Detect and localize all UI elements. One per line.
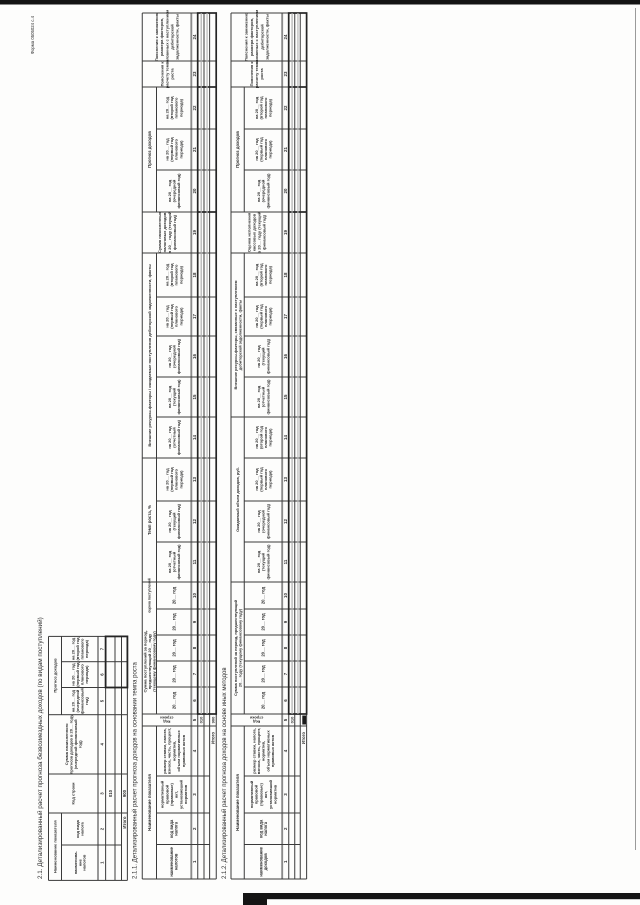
svg-text:2.1.1. Детализированный расчет: 2.1.1. Детализированный расчет прогноза … <box>132 662 139 879</box>
svg-text:1: 1 <box>99 861 104 864</box>
svg-text:роста: роста <box>259 68 264 80</box>
svg-text:19: 19 <box>192 230 197 235</box>
svg-text:010: 010 <box>198 716 203 723</box>
svg-text:3: 3 <box>192 793 197 796</box>
svg-text:13: 13 <box>192 477 197 482</box>
svg-text:финансовый год): финансовый год) <box>262 214 267 250</box>
svg-text:периода): периода) <box>178 307 183 326</box>
svg-text:12: 12 <box>283 519 288 524</box>
svg-text:финансовый год): финансовый год) <box>265 379 270 415</box>
svg-text:4: 4 <box>283 749 288 752</box>
svg-text:010: 010 <box>108 789 113 797</box>
svg-text:периода): периода) <box>178 265 183 284</box>
svg-text:1: 1 <box>192 860 197 863</box>
svg-text:периода): периода) <box>84 665 89 684</box>
svg-text:3: 3 <box>283 793 288 796</box>
svg-text:финансовый год): финансовый год) <box>265 338 270 374</box>
svg-text:6: 6 <box>99 673 104 676</box>
svg-text:17: 17 <box>192 314 197 319</box>
svg-text:строки: строки <box>249 715 263 720</box>
svg-text:периода): периода) <box>178 98 183 117</box>
svg-text:4: 4 <box>99 742 104 745</box>
svg-text:16: 16 <box>192 354 197 359</box>
svg-text:периода): периода) <box>178 140 183 159</box>
svg-text:финансовый год): финансовый год) <box>265 173 270 209</box>
svg-text:правовых актов: правовых актов <box>181 734 186 767</box>
svg-text:12: 12 <box>192 519 197 524</box>
svg-text:Прогноз доходов: Прогноз доходов <box>147 131 152 168</box>
svg-text:периода): периода) <box>268 265 273 284</box>
svg-text:2: 2 <box>99 827 104 830</box>
svg-text:год): год) <box>78 740 83 749</box>
svg-text:Прогноз доходов: Прогноз доходов <box>235 131 240 168</box>
svg-text:Темп роста, %: Темп роста, % <box>147 505 152 535</box>
svg-text:периода): периода) <box>268 98 273 117</box>
svg-text:17: 17 <box>283 314 288 319</box>
svg-text:14: 14 <box>192 435 197 440</box>
svg-text:(текущему финансовому году): (текущему финансовому году) <box>151 631 156 692</box>
svg-text:21: 21 <box>283 147 288 152</box>
svg-text:20__ год: 20__ год <box>261 613 266 631</box>
svg-text:периода): периода) <box>268 470 273 489</box>
svg-text:финансовый год): финансовый год) <box>176 419 181 455</box>
svg-text:периода): периода) <box>268 307 273 326</box>
svg-text:Наименование показателя: Наименование показателя <box>147 774 152 831</box>
svg-text:20__ год: 20__ год <box>171 587 176 605</box>
svg-text:2: 2 <box>283 827 288 830</box>
svg-text:финансовый год): финансовый год) <box>265 503 270 539</box>
svg-text:Итого: Итого <box>210 732 215 744</box>
svg-text:оценка поступлений: оценка поступлений <box>147 578 151 612</box>
svg-text:норматив: норматив <box>183 784 188 804</box>
svg-text:налога: налога <box>174 821 179 836</box>
svg-text:18: 18 <box>192 272 197 277</box>
svg-text:15: 15 <box>283 394 288 399</box>
svg-text:900: 900 <box>210 716 215 723</box>
svg-text:5: 5 <box>283 718 288 721</box>
svg-text:22: 22 <box>192 105 197 110</box>
svg-text:периода): периода) <box>178 470 183 489</box>
svg-text:Итого: Итого <box>122 816 127 828</box>
svg-text:финансовый год): финансовый год) <box>176 173 181 209</box>
svg-text:периода): периода) <box>84 639 89 658</box>
svg-text:20__ году (текущему финансовом: 20__ году (текущему финансовому году) <box>237 608 242 687</box>
svg-text:2.1.2. Детализированный расчет: 2.1.2. Детализированный расчет прогноза … <box>221 667 228 879</box>
svg-text:6: 6 <box>283 699 288 702</box>
svg-text:финансовый год): финансовый год) <box>265 544 270 580</box>
svg-text:20__ год: 20__ год <box>261 692 266 710</box>
svg-text:20__ год: 20__ год <box>171 692 176 710</box>
svg-text:19: 19 <box>283 230 288 235</box>
svg-text:дебиторской задолженности, фак: дебиторской задолженности, факты <box>237 299 242 370</box>
svg-text:Код строки: Код строки <box>71 782 76 805</box>
svg-text:23: 23 <box>192 71 197 76</box>
svg-text:периода): периода) <box>268 140 273 159</box>
svg-text:15: 15 <box>192 394 197 399</box>
svg-text:Итого: Итого <box>301 732 306 744</box>
svg-text:010: 010 <box>289 716 294 723</box>
svg-text:Прогноз доходов: Прогноз доходов <box>53 658 58 693</box>
svg-text:периода): периода) <box>268 428 273 447</box>
svg-text:13: 13 <box>283 477 288 482</box>
svg-text:7: 7 <box>192 672 197 675</box>
svg-text:20__ год: 20__ год <box>171 613 176 631</box>
svg-text:20__ год: 20__ год <box>261 665 266 683</box>
svg-text:Ожидаемый объем доходов, руб.: Ожидаемый объем доходов, руб. <box>235 467 240 532</box>
svg-text:24: 24 <box>192 34 197 39</box>
svg-text:20__ год: 20__ год <box>171 665 176 683</box>
svg-text:8: 8 <box>192 646 197 649</box>
svg-text:14: 14 <box>283 435 288 440</box>
svg-text:6: 6 <box>192 699 197 702</box>
svg-text:7: 7 <box>99 647 104 650</box>
svg-text:финансовый год): финансовый год) <box>176 503 181 539</box>
svg-text:финансовый год): финансовый год) <box>176 379 181 415</box>
svg-text:11: 11 <box>192 559 197 564</box>
svg-text:строки: строки <box>160 715 174 720</box>
svg-text:задолженности, факты: задолженности, факты <box>265 14 270 60</box>
svg-text:20: 20 <box>283 188 288 193</box>
svg-text:2: 2 <box>192 827 197 830</box>
svg-text:налогов: налогов <box>174 853 179 870</box>
svg-text:22: 22 <box>283 105 288 110</box>
svg-text:1: 1 <box>283 860 288 863</box>
svg-text:16: 16 <box>283 354 288 359</box>
svg-text:20: 20 <box>192 188 197 193</box>
svg-text:2.1. Детализированный расчет п: 2.1. Детализированный расчет прогноза бе… <box>36 617 44 879</box>
svg-text:налогов: налогов <box>82 854 87 871</box>
svg-text:роста: роста <box>169 68 174 80</box>
svg-text:9: 9 <box>283 620 288 623</box>
svg-text:3: 3 <box>99 792 104 795</box>
svg-text:задолженности, факты: задолженности, факты <box>175 14 180 60</box>
svg-text:5: 5 <box>99 699 104 702</box>
svg-text:Наименование показателя: Наименование показателя <box>53 820 58 873</box>
svg-text:финансовый год): финансовый год) <box>176 544 181 580</box>
svg-text:10: 10 <box>192 593 197 598</box>
svg-text:7: 7 <box>283 672 288 675</box>
svg-text:18: 18 <box>283 272 288 277</box>
svg-text:4: 4 <box>192 749 197 752</box>
svg-text:Внешние ресурсы-факторы / ожид: Внешние ресурсы-факторы / ожидаемые пост… <box>147 264 152 447</box>
svg-text:Наименование показателя: Наименование показателя <box>235 774 240 831</box>
svg-text:9: 9 <box>192 620 197 623</box>
svg-text:21: 21 <box>192 147 197 152</box>
svg-text:год): год) <box>84 696 89 705</box>
svg-text:5: 5 <box>192 718 197 721</box>
svg-text:900: 900 <box>122 789 127 797</box>
svg-text:Форма 0505024 с.4: Форма 0505024 с.4 <box>30 15 35 54</box>
svg-text:финансовый год): финансовый год) <box>172 214 177 250</box>
svg-text:норматив: норматив <box>273 784 278 804</box>
svg-text:11: 11 <box>283 559 288 564</box>
svg-text:20__ год: 20__ год <box>261 587 266 605</box>
svg-text:10: 10 <box>283 593 288 598</box>
svg-text:финансовый год): финансовый год) <box>176 338 181 374</box>
svg-text:23: 23 <box>283 71 288 76</box>
svg-text:24: 24 <box>283 34 288 39</box>
svg-text:8: 8 <box>283 646 288 649</box>
svg-text:налога: налога <box>80 821 85 835</box>
svg-text:20__ год: 20__ год <box>171 639 176 657</box>
svg-text:доходов: доходов <box>263 853 268 871</box>
svg-text:правовых актов: правовых актов <box>270 734 275 767</box>
svg-text:налога: налога <box>263 821 268 836</box>
svg-text:20__ год: 20__ год <box>261 639 266 657</box>
